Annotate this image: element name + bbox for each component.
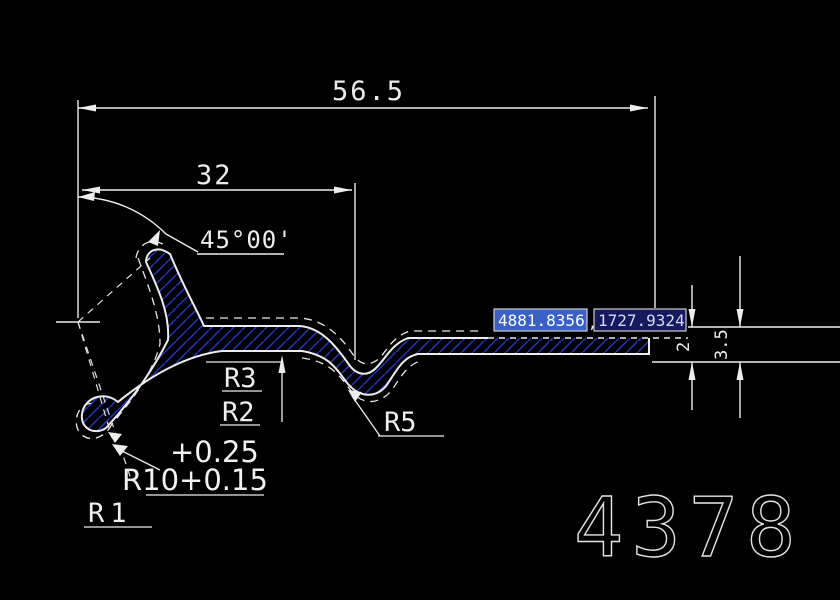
cad-drawing: 56.5 32 45°00' R3 R2 R5 +0.25 R — [0, 0, 840, 600]
dynamic-input: 4881.8356 , 1727.9324 — [488, 309, 688, 338]
part-profile — [82, 249, 649, 431]
label-radius-main: R10+0.15 — [122, 463, 268, 497]
label-r3: R3 — [224, 363, 257, 394]
label-r1: R1 — [88, 498, 133, 529]
part-number: 4378 — [574, 481, 803, 576]
dim-angle-label: 45°00' — [200, 226, 293, 254]
dim-end-height-label: 3.5 — [712, 329, 732, 360]
label-r2: R2 — [222, 397, 255, 428]
cad-drawing-canvas: 56.5 32 45°00' R3 R2 R5 +0.25 R — [0, 0, 840, 600]
dim-overall-label: 56.5 — [332, 76, 405, 107]
label-r5: R5 — [384, 407, 417, 438]
dim-left-label: 32 — [196, 160, 233, 191]
construction-rays — [78, 258, 150, 482]
dynamic-input-y-value[interactable]: 1727.9324 — [598, 311, 685, 330]
dim-right-end — [652, 256, 840, 418]
dim-thickness-label: 2 — [674, 342, 694, 352]
dynamic-input-x-value[interactable]: 4881.8356 — [498, 311, 585, 330]
